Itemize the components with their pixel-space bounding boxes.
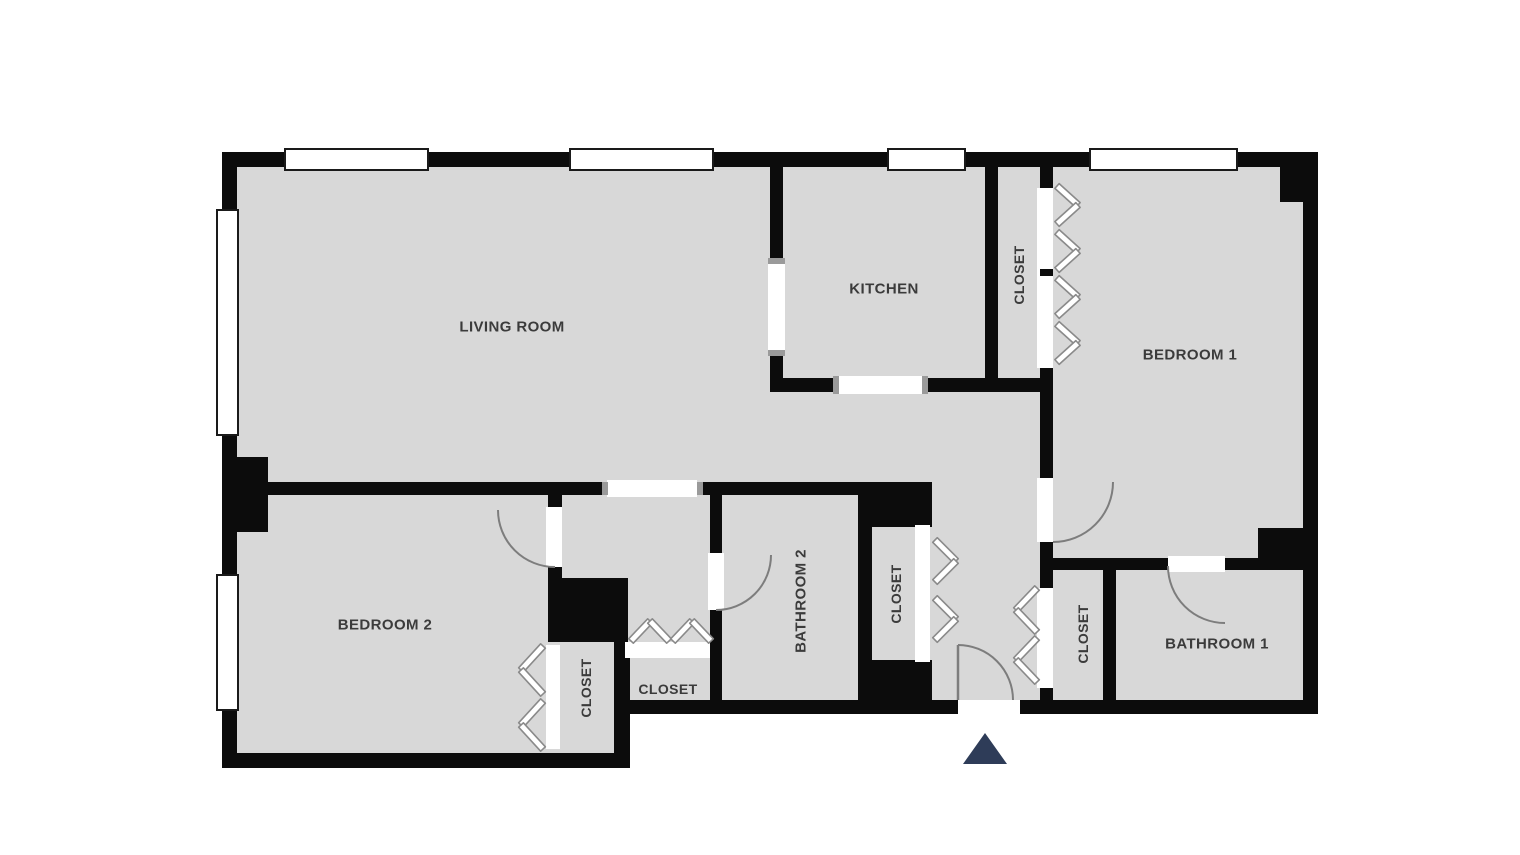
wall-segment — [1040, 558, 1168, 570]
doorway-opening — [768, 263, 785, 350]
wall-segment — [1280, 167, 1318, 202]
wall-segment — [548, 567, 562, 578]
wall-segment — [222, 435, 237, 457]
doorway-opening — [546, 507, 562, 567]
window-icon — [1090, 149, 1237, 170]
wall-segment — [1040, 570, 1053, 588]
wall-segment — [1040, 269, 1053, 276]
wall-segment — [222, 753, 630, 768]
wall-segment — [965, 152, 1090, 167]
opening-jamb-cap — [697, 482, 703, 495]
wall-segment — [1258, 528, 1318, 560]
wall-segment — [548, 495, 562, 507]
wall-segment — [713, 152, 888, 167]
doorway-opening — [838, 376, 922, 394]
wall-segment — [1040, 392, 1053, 478]
room-label-closet-bathroom: CLOSET — [888, 564, 904, 623]
window-icon — [285, 149, 428, 170]
opening-jamb-cap — [768, 350, 785, 356]
room-label-kitchen: KITCHEN — [849, 280, 918, 297]
doorway-opening — [1037, 478, 1053, 542]
floorplan-drawing: LIVING ROOMKITCHENCLOSETBEDROOM 1BEDROOM… — [0, 0, 1520, 855]
doorway-opening — [625, 642, 710, 658]
wall-segment — [428, 152, 570, 167]
wall-segment — [770, 167, 783, 263]
room-label-closet-entry: CLOSET — [1075, 604, 1091, 663]
doorway-opening — [915, 525, 930, 662]
wall-segment — [858, 495, 932, 527]
wall-segment — [1103, 570, 1116, 700]
doorway-opening — [1037, 188, 1053, 368]
window-icon — [217, 575, 238, 710]
opening-jamb-cap — [833, 376, 839, 394]
room-label-bedroom-1: BEDROOM 1 — [1143, 346, 1237, 363]
doorway-opening — [1168, 556, 1225, 572]
doorway-opening — [958, 700, 1020, 714]
window-icon — [888, 149, 965, 170]
wall-segment — [222, 152, 237, 210]
wall-segment — [222, 532, 237, 575]
wall-segment — [1040, 167, 1053, 188]
room-label-closet-kitchen: CLOSET — [1011, 245, 1027, 304]
wall-segment — [1040, 688, 1053, 714]
room-label-living-room: LIVING ROOM — [459, 318, 564, 335]
wall-segment — [710, 495, 722, 553]
wall-segment — [222, 457, 268, 532]
window-icon — [570, 149, 713, 170]
wall-segment — [702, 482, 932, 495]
floorplan-canvas: LIVING ROOMKITCHENCLOSETBEDROOM 1BEDROOM… — [0, 0, 1520, 855]
wall-segment — [1020, 700, 1318, 714]
room-label-bedroom-2: BEDROOM 2 — [338, 616, 432, 633]
room-label-bathroom-2: BATHROOM 2 — [792, 549, 809, 653]
doorway-opening — [607, 480, 697, 497]
wall-segment — [858, 660, 932, 714]
wall-segment — [985, 167, 998, 392]
doorway-opening — [708, 553, 724, 610]
opening-jamb-cap — [602, 482, 608, 495]
room-label-closet-bedroom-2: CLOSET — [578, 658, 594, 717]
entry-marker-icon — [963, 733, 1007, 764]
wall-segment — [1303, 152, 1318, 714]
opening-jamb-cap — [768, 258, 785, 264]
wall-segment — [263, 482, 548, 495]
wall-segment — [1040, 368, 1053, 392]
doorway-opening — [546, 645, 560, 749]
window-icon — [217, 210, 238, 435]
doorway-opening — [1037, 588, 1053, 688]
opening-jamb-cap — [922, 376, 928, 394]
wall-segment — [548, 482, 607, 495]
room-label-closet-hall: CLOSET — [638, 681, 697, 697]
wall-segment — [548, 578, 628, 642]
wall-segment — [770, 378, 838, 392]
wall-segment — [1225, 558, 1318, 570]
room-label-bathroom-1: BATHROOM 1 — [1165, 635, 1269, 652]
wall-segment — [710, 610, 722, 714]
